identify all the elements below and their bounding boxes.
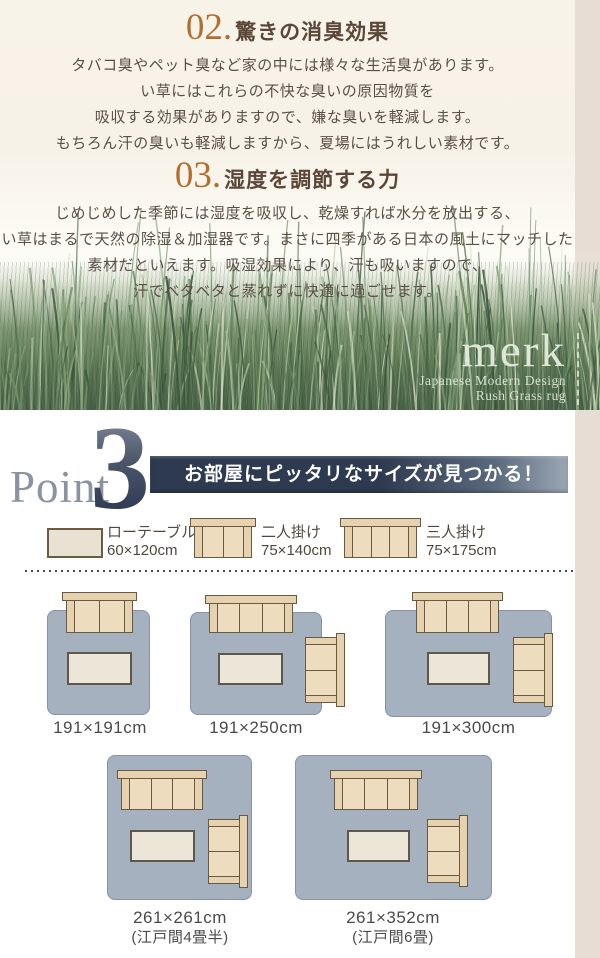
rug-diagram-191x191: 191×191cm — [40, 585, 160, 740]
point-banner: お部屋にピッタリなサイズが見つかる！ — [150, 456, 568, 493]
sofa-2seat-vertical-icon — [208, 815, 248, 888]
brand-tagline: Japanese Modern Design — [419, 373, 566, 388]
low-table-icon — [427, 652, 490, 685]
rug-diagram-191x300: 191×300cm — [380, 585, 560, 740]
rug-diagram-191x250: 191×250cm — [185, 585, 350, 740]
sofa-3seat-icon — [340, 518, 421, 558]
section-deodorize-text: タバコ臭やペット臭など家の中には様々な生活臭があります。 い草にはこれらの不快な… — [0, 53, 575, 157]
text-line: 汗でベタベタと蒸れずに快適に過ごせます。 — [0, 279, 575, 305]
sofa-3seat-icon — [412, 592, 503, 633]
rug-size-label: 191×250cm — [190, 718, 322, 738]
product-page: 02. 驚きの消臭効果 タバコ臭やペット臭など家の中には様々な生活臭があります。… — [0, 0, 600, 958]
text-line: もちろん汗の臭いも軽減しますから、夏場にはうれしい素材です。 — [0, 131, 575, 157]
section-number: 03. — [175, 156, 221, 196]
sofa-2seat-icon — [62, 592, 137, 633]
rug-size-label: 191×191cm — [40, 718, 160, 738]
sofa-3seat-icon — [205, 595, 297, 633]
low-table-icon — [218, 653, 283, 685]
sofa-2seat-vertical-icon — [427, 815, 468, 887]
sofa-2seat-vertical-icon — [305, 633, 345, 707]
point-number: 3 — [90, 418, 150, 518]
section-title: 湿度を調節する力 — [224, 164, 400, 194]
rug-size-label: 261×261cm (江戸間4畳半) — [100, 908, 260, 948]
rug-note: (江戸間4畳半) — [100, 928, 260, 948]
sofa-3seat-icon — [330, 770, 422, 810]
text-line: タバコ臭やペット臭など家の中には様々な生活臭があります。 — [0, 53, 575, 79]
rope-divider — [577, 333, 579, 405]
section-title: 驚きの消臭効果 — [235, 16, 389, 46]
rug-size-label: 191×300cm — [385, 718, 552, 738]
legend-sofa-3seat: 三人掛け 75×175cm — [426, 524, 496, 560]
section-deodorize-heading: 02. 驚きの消臭効果 — [0, 8, 575, 48]
point-banner-text: お部屋にピッタリなサイズが見つかる！ — [150, 456, 568, 493]
legend-size: 75×175cm — [426, 542, 496, 560]
brand-name: merk — [419, 329, 566, 373]
text-line: 吸収する効果がありますので、嫌な臭いを軽減します。 — [0, 105, 575, 131]
legend-label: 二人掛け — [261, 524, 331, 542]
page-side-strip — [575, 0, 600, 958]
text-line: 素材だといえます。吸湿効果により、汗も吸いますので、 — [0, 253, 575, 279]
sofa-2seat-icon — [190, 518, 256, 558]
section-humidity-text: じめじめした季節には湿度を吸収し、乾燥すれば水分を放出する、 い草はまるで天然の… — [0, 201, 575, 305]
dotted-divider — [25, 570, 575, 572]
sofa-2seat-vertical-icon — [513, 633, 553, 707]
text-line: い草にはこれらの不快な臭いの原因物質を — [0, 79, 575, 105]
rug-diagram-261x261: 261×261cm (江戸間4畳半) — [100, 750, 260, 950]
rug-diagram-261x352: 261×352cm (江戸間6畳) — [288, 750, 498, 950]
legend-size: 60×120cm — [107, 542, 196, 560]
legend-size: 75×140cm — [261, 542, 331, 560]
sofa-3seat-icon — [117, 770, 207, 810]
rug-size: 261×261cm — [100, 908, 260, 928]
legend-label: 三人掛け — [426, 524, 496, 542]
low-table-icon — [67, 652, 132, 685]
section-deodorize: 02. 驚きの消臭効果 タバコ臭やペット臭など家の中には様々な生活臭があります。… — [0, 8, 575, 157]
rug-size-label: 261×352cm (江戸間6畳) — [288, 908, 498, 948]
low-table-icon — [347, 830, 410, 862]
text-line: い草はまるで天然の除湿＆加湿器です。まさに四季がある日本の風土にマッチした — [0, 227, 575, 253]
brand-logo: merk Japanese Modern Design Rush Grass r… — [419, 329, 566, 403]
section-humidity-heading: 03. 湿度を調節する力 — [0, 156, 575, 196]
section-number: 02. — [186, 8, 232, 48]
low-table-icon — [130, 830, 195, 862]
legend-sofa-2seat: 二人掛け 75×140cm — [261, 524, 331, 560]
rug-note: (江戸間6畳) — [288, 928, 498, 948]
text-line: じめじめした季節には湿度を吸収し、乾燥すれば水分を放出する、 — [0, 201, 575, 227]
brand-tagline: Rush Grass rug — [419, 388, 566, 403]
section-humidity: 03. 湿度を調節する力 じめじめした季節には湿度を吸収し、乾燥すれば水分を放出… — [0, 156, 575, 305]
rug-size: 261×352cm — [288, 908, 498, 928]
